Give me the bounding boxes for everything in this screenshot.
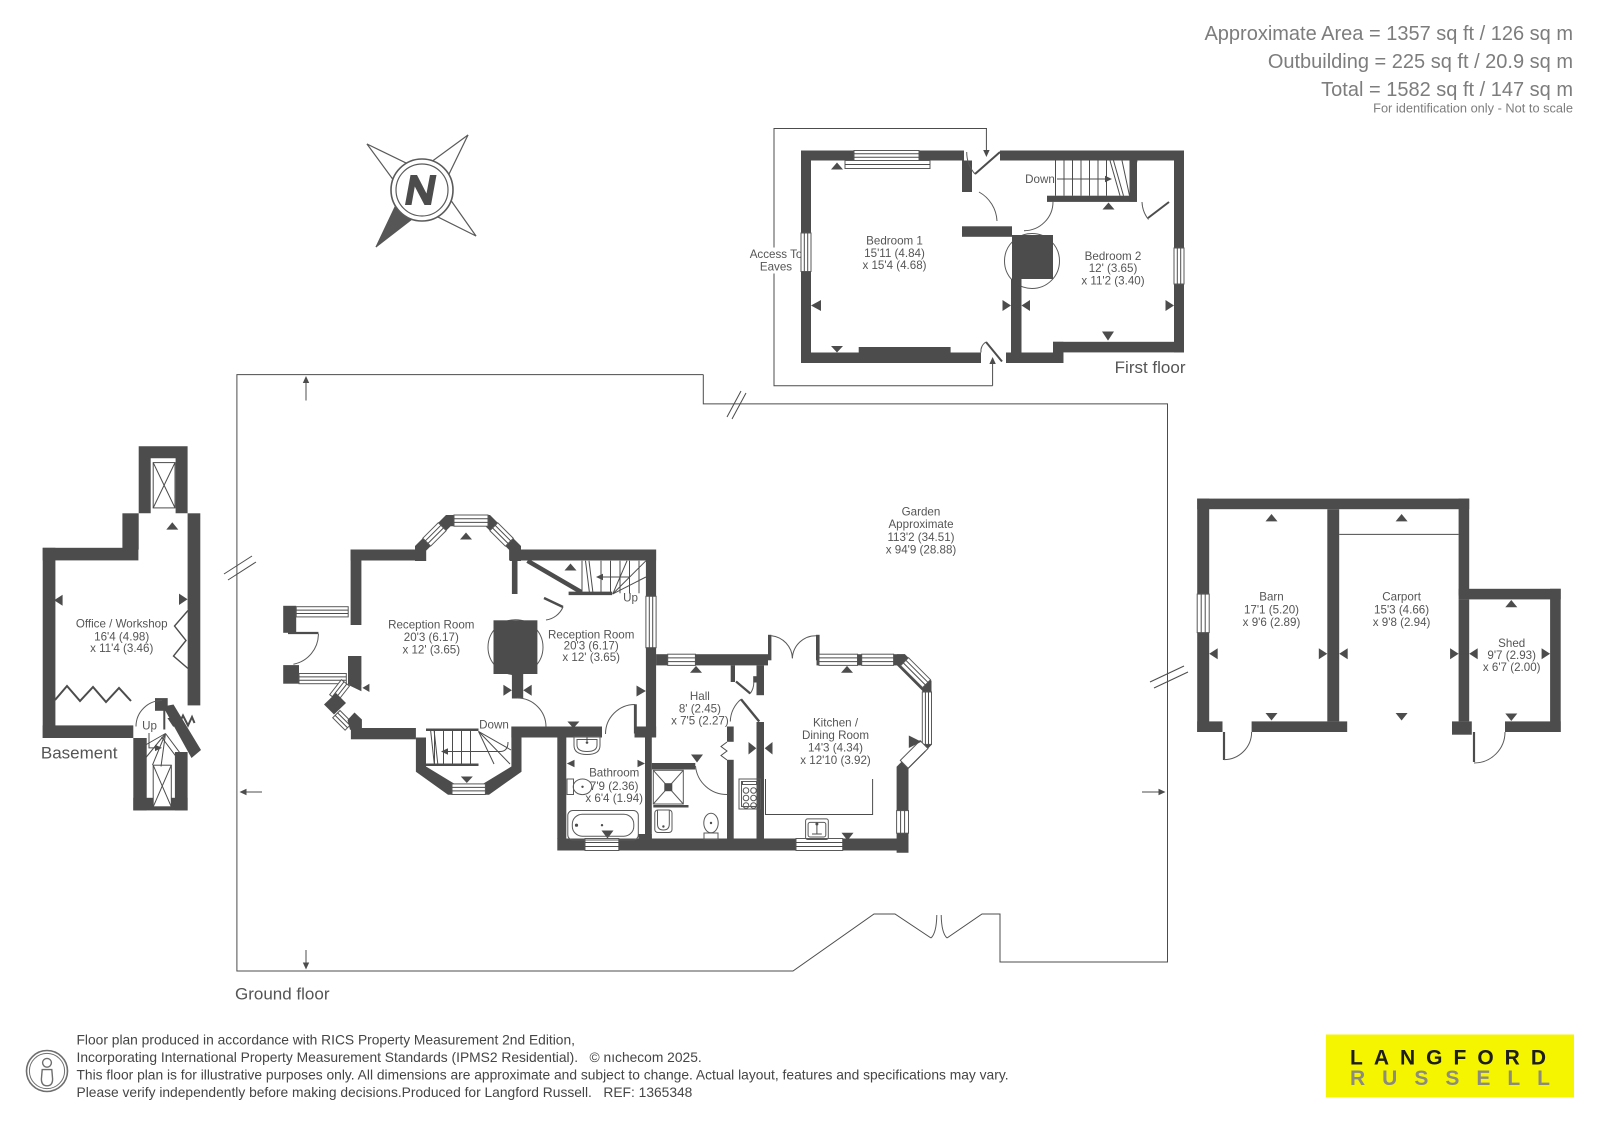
svg-text:113'2 (34.51): 113'2 (34.51) <box>887 531 954 544</box>
svg-text:Bathroom: Bathroom <box>589 767 639 780</box>
svg-text:Incorporating International Pr: Incorporating International Property Mea… <box>77 1050 702 1065</box>
svg-text:Up: Up <box>142 720 157 733</box>
svg-text:17'1 (5.20): 17'1 (5.20) <box>1244 604 1299 617</box>
svg-text:Eaves: Eaves <box>760 261 792 274</box>
svg-text:This floor plan is for illustr: This floor plan is for illustrative purp… <box>77 1068 1009 1083</box>
svg-text:Total = 1582 sq ft / 147 sq m: Total = 1582 sq ft / 147 sq m <box>1321 79 1573 101</box>
svg-text:Carport: Carport <box>1382 591 1421 604</box>
svg-text:Floor plan produced in accorda: Floor plan produced in accordance with R… <box>77 1033 575 1048</box>
svg-text:Office / Workshop: Office / Workshop <box>76 618 168 631</box>
svg-text:x 12'10 (3.92): x 12'10 (3.92) <box>800 754 871 767</box>
svg-text:Dining Room: Dining Room <box>802 729 869 742</box>
svg-text:x 6'4 (1.94): x 6'4 (1.94) <box>585 792 643 805</box>
svg-text:x 12' (3.65): x 12' (3.65) <box>402 644 460 657</box>
svg-text:15'3 (4.66): 15'3 (4.66) <box>1374 604 1429 617</box>
svg-text:x 11'4 (3.46): x 11'4 (3.46) <box>90 642 153 655</box>
svg-text:15'11 (4.84): 15'11 (4.84) <box>864 247 925 260</box>
svg-text:Kitchen /: Kitchen / <box>813 717 859 730</box>
svg-text:Bedroom 2: Bedroom 2 <box>1085 250 1142 263</box>
svg-text:Approximate: Approximate <box>888 518 953 531</box>
svg-text:x 15'4 (4.68): x 15'4 (4.68) <box>862 259 926 272</box>
svg-text:Approximate Area = 1357 sq ft: Approximate Area = 1357 sq ft / 126 sq m <box>1204 23 1573 45</box>
svg-text:Up: Up <box>623 592 638 605</box>
svg-text:Outbuilding = 225 sq ft / 20.9: Outbuilding = 225 sq ft / 20.9 sq m <box>1268 51 1573 73</box>
svg-text:Garden: Garden <box>902 506 941 519</box>
svg-text:14'3 (4.34): 14'3 (4.34) <box>808 742 863 755</box>
svg-text:x 7'5 (2.27): x 7'5 (2.27) <box>671 715 729 728</box>
svg-text:x 6'7 (2.00): x 6'7 (2.00) <box>1483 661 1541 674</box>
svg-text:Ground floor: Ground floor <box>235 985 330 1004</box>
svg-text:Hall: Hall <box>690 690 710 703</box>
svg-text:x 11'2 (3.40): x 11'2 (3.40) <box>1081 274 1144 287</box>
svg-text:Basement: Basement <box>41 744 118 763</box>
svg-text:12' (3.65): 12' (3.65) <box>1089 262 1138 275</box>
svg-text:Reception Room: Reception Room <box>388 619 474 632</box>
svg-text:x 12' (3.65): x 12' (3.65) <box>562 651 620 664</box>
svg-text:20'3 (6.17): 20'3 (6.17) <box>404 631 459 644</box>
svg-text:Barn: Barn <box>1259 591 1284 604</box>
svg-text:RUSSELL: RUSSELL <box>1350 1067 1567 1090</box>
svg-text:Down: Down <box>479 719 509 732</box>
svg-text:First floor: First floor <box>1115 358 1186 377</box>
svg-text:x 94'9 (28.88): x 94'9 (28.88) <box>886 544 957 557</box>
svg-text:For identification only - Not: For identification only - Not to scale <box>1373 101 1573 116</box>
svg-text:x 9'8 (2.94): x 9'8 (2.94) <box>1373 616 1431 629</box>
svg-text:Access To: Access To <box>750 248 803 261</box>
svg-text:Down: Down <box>1025 173 1055 186</box>
svg-text:Bedroom 1: Bedroom 1 <box>866 235 923 248</box>
svg-text:x 9'6 (2.89): x 9'6 (2.89) <box>1243 616 1301 629</box>
svg-text:Please verify independently be: Please verify independently before makin… <box>77 1085 693 1100</box>
